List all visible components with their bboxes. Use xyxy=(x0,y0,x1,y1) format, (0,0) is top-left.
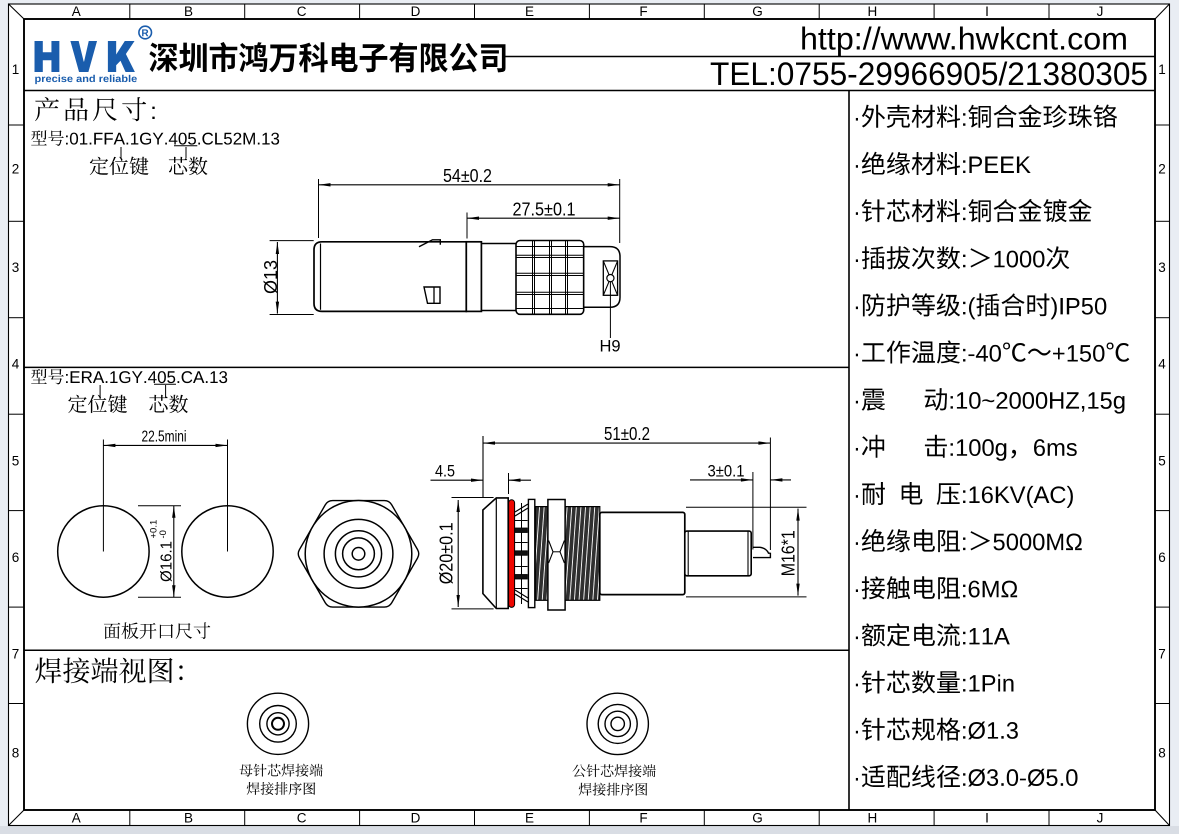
svg-text:7: 7 xyxy=(1158,647,1166,662)
svg-text:TEL:0755-29966905/21380305: TEL:0755-29966905/21380305 xyxy=(710,56,1148,92)
svg-text:C: C xyxy=(297,811,307,826)
svg-text:2: 2 xyxy=(12,162,20,177)
svg-text:http://www.hwkcnt.com: http://www.hwkcnt.com xyxy=(800,21,1128,57)
svg-text:H9: H9 xyxy=(600,338,621,356)
svg-text:I: I xyxy=(985,811,989,826)
svg-text:Ø20±0.1: Ø20±0.1 xyxy=(437,522,457,584)
svg-text:D: D xyxy=(411,4,421,19)
svg-text:3±0.1: 3±0.1 xyxy=(708,463,745,481)
svg-text:6: 6 xyxy=(1158,550,1166,565)
svg-text:7: 7 xyxy=(12,647,20,662)
svg-text:J: J xyxy=(1097,4,1104,19)
svg-text:B: B xyxy=(184,4,193,19)
svg-text:-0: -0 xyxy=(158,530,169,538)
svg-text:4: 4 xyxy=(1158,356,1166,371)
svg-text:8: 8 xyxy=(1158,746,1166,761)
svg-text:3: 3 xyxy=(1158,260,1166,275)
svg-text:3: 3 xyxy=(12,260,20,275)
svg-text:27.5±0.1: 27.5±0.1 xyxy=(513,200,576,220)
svg-text:I: I xyxy=(985,4,989,19)
svg-text:4: 4 xyxy=(12,356,20,371)
svg-text:8: 8 xyxy=(12,746,20,761)
svg-text:G: G xyxy=(752,811,763,826)
svg-text:1: 1 xyxy=(1158,62,1166,77)
svg-text:G: G xyxy=(752,4,763,19)
svg-text:1: 1 xyxy=(12,62,20,77)
svg-text:6: 6 xyxy=(12,550,20,565)
svg-text:5: 5 xyxy=(1158,454,1166,469)
svg-text:Ø13: Ø13 xyxy=(261,260,281,294)
svg-text:E: E xyxy=(525,811,534,826)
svg-text:H: H xyxy=(868,4,878,19)
svg-text:F: F xyxy=(639,811,647,826)
svg-text:F: F xyxy=(639,4,647,19)
svg-text:C: C xyxy=(297,4,307,19)
svg-text:D: D xyxy=(411,811,421,826)
svg-text:22.5mini: 22.5mini xyxy=(142,429,187,446)
svg-text:B: B xyxy=(184,811,193,826)
svg-text:Ø16.1: Ø16.1 xyxy=(159,541,176,582)
svg-text:E: E xyxy=(525,4,534,19)
svg-text:4.5: 4.5 xyxy=(435,463,455,481)
svg-text:51±0.2: 51±0.2 xyxy=(604,424,650,444)
svg-text:A: A xyxy=(72,4,81,19)
svg-text:2: 2 xyxy=(1158,162,1166,177)
svg-text:J: J xyxy=(1097,811,1104,826)
svg-text:A: A xyxy=(72,811,81,826)
svg-text:54±0.2: 54±0.2 xyxy=(443,166,492,186)
svg-text:5: 5 xyxy=(12,454,20,469)
svg-text:H: H xyxy=(868,811,878,826)
svg-text:M16*1: M16*1 xyxy=(779,530,799,576)
